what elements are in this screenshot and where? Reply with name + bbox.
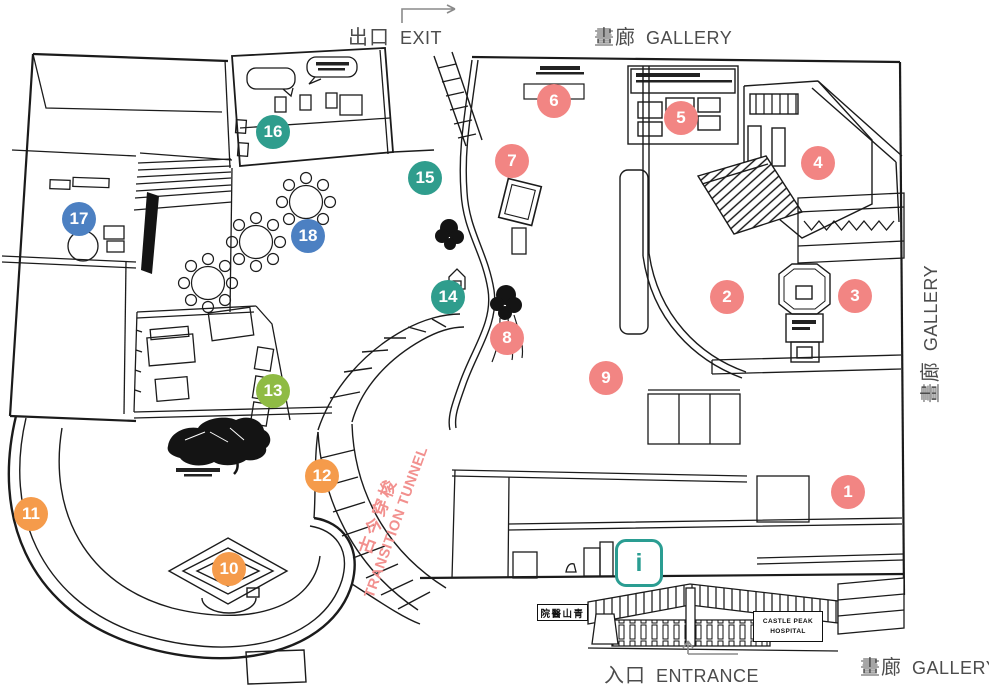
- info-glyph: i: [636, 549, 643, 578]
- marker-13[interactable]: 13: [256, 374, 290, 408]
- entrance-label: 入口 ENTRANCE: [604, 659, 759, 688]
- room-13: [134, 306, 332, 426]
- marker-17[interactable]: 17: [62, 202, 96, 236]
- frame-exhibit: [499, 178, 542, 254]
- marker-16[interactable]: 16: [256, 115, 290, 149]
- gallery-right-en: GALLERY: [921, 265, 942, 351]
- marker-14[interactable]: 14: [431, 280, 465, 314]
- brain-icon: [168, 418, 271, 477]
- gallery-top-zh: 畫廊: [594, 21, 636, 50]
- castle-peak-hospital-sign: CASTLE PEAK HOSPITAL: [753, 611, 823, 642]
- marker-6[interactable]: 6: [537, 84, 571, 118]
- marker-12[interactable]: 12: [305, 459, 339, 493]
- marker-11[interactable]: 11: [14, 497, 48, 531]
- gallery-label-top: 畫廊 GALLERY: [594, 21, 732, 50]
- chevron-wall: [798, 193, 904, 263]
- exit-label: 出口 EXIT: [348, 21, 442, 50]
- left-wing: [2, 48, 393, 414]
- hospital-sign-chinese: 院醫山青: [537, 604, 588, 621]
- exit-label-en: EXIT: [400, 28, 442, 49]
- entrance-label-zh: 入口: [604, 659, 646, 688]
- marker-1[interactable]: 1: [831, 475, 865, 509]
- hatched-roof: [698, 156, 802, 234]
- gallery-bottom-zh: 畫廊: [860, 651, 902, 680]
- hospital-sign-line2: HOSPITAL: [770, 627, 806, 637]
- marker-9[interactable]: 9: [589, 361, 623, 395]
- hospital-sign-zh-text: 院醫山青: [540, 606, 584, 620]
- gallery-label-right: 畫廊 GALLERY: [914, 264, 938, 404]
- marker-5[interactable]: 5: [664, 101, 698, 135]
- gallery-label-bottom: 畫廊 GALLERY: [860, 651, 989, 680]
- entrance-label-en: ENTRANCE: [656, 666, 759, 687]
- information-icon[interactable]: i: [615, 539, 663, 587]
- gallery-right-zh: 畫廊: [914, 361, 943, 403]
- gallery-bottom-en: GALLERY: [912, 658, 989, 679]
- marker-4[interactable]: 4: [801, 146, 835, 180]
- marker-10[interactable]: 10: [212, 552, 246, 586]
- gallery-top-en: GALLERY: [646, 28, 732, 49]
- marker-18[interactable]: 18: [291, 219, 325, 253]
- outer-walls: [10, 54, 904, 595]
- kiosk-3: [779, 264, 830, 362]
- floor-plan-canvas: 出口 EXIT 畫廊 GALLERY 畫廊 GALLERY 畫廊 GALLERY…: [0, 0, 989, 696]
- marker-15[interactable]: 15: [408, 161, 442, 195]
- hall-9: [648, 355, 901, 444]
- entrance-canopy: [588, 578, 904, 651]
- hospital-sign-line1: CASTLE PEAK: [763, 617, 813, 627]
- marker-7[interactable]: 7: [495, 144, 529, 178]
- marker-3[interactable]: 3: [838, 279, 872, 313]
- marker-8[interactable]: 8: [490, 321, 524, 355]
- marker-2[interactable]: 2: [710, 280, 744, 314]
- exit-label-zh: 出口: [348, 21, 390, 50]
